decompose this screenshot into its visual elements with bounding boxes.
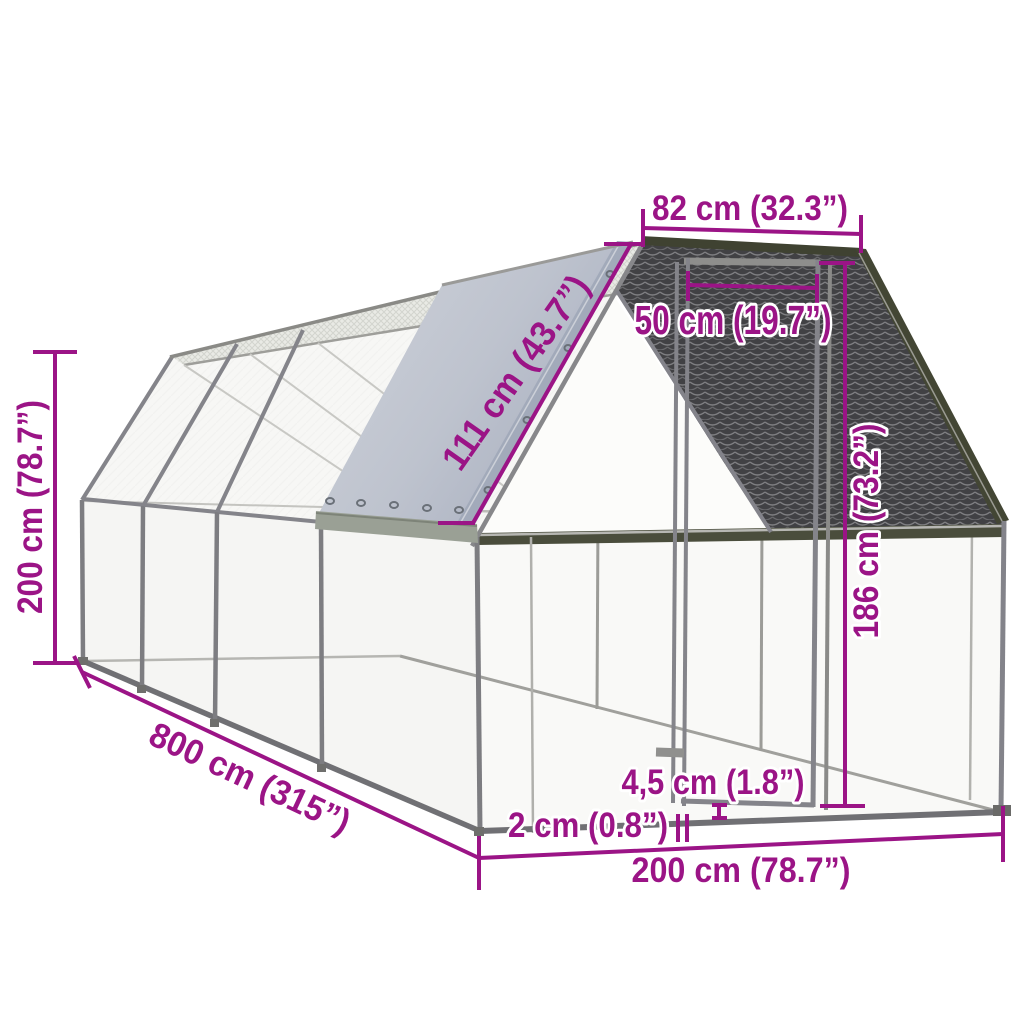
svg-text:4,5 cm (1.8”): 4,5 cm (1.8”) — [622, 763, 805, 802]
svg-text:200 cm (78.7”): 200 cm (78.7”) — [11, 400, 50, 614]
svg-text:50 cm (19.7”): 50 cm (19.7”) — [635, 297, 832, 343]
svg-text:2 cm (0.8”): 2 cm (0.8”) — [508, 806, 668, 845]
svg-text:200 cm (78.7”): 200 cm (78.7”) — [632, 851, 851, 890]
svg-text:82 cm (32.3”): 82 cm (32.3”) — [652, 189, 848, 228]
svg-text:186 cm (73.2”): 186 cm (73.2”) — [847, 424, 886, 639]
